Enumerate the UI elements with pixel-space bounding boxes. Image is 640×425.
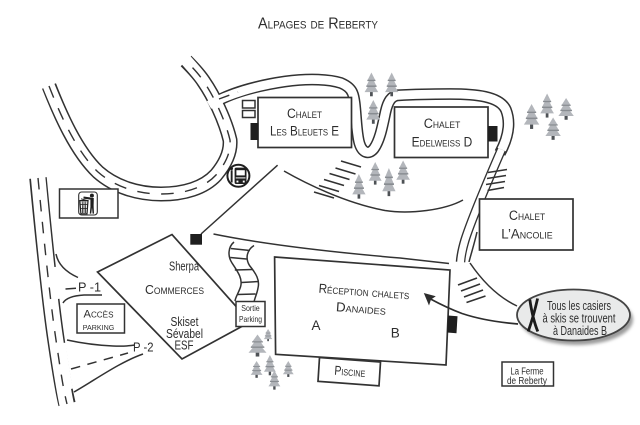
svg-text:de Reberty: de Reberty [507, 376, 547, 387]
svg-text:Chalet: Chalet [424, 116, 461, 131]
svg-text:Sortie: Sortie [241, 303, 260, 313]
svg-text:B: B [391, 326, 400, 341]
svg-text:parking: parking [83, 322, 115, 333]
svg-text:L’Ancolie: L’Ancolie [501, 227, 552, 242]
svg-text:Edelweiss D: Edelweiss D [412, 135, 473, 150]
svg-text:Accès: Accès [84, 309, 114, 321]
svg-text:Chalet: Chalet [287, 106, 322, 121]
svg-text:P -2: P -2 [133, 341, 154, 355]
svg-text:Sherpa: Sherpa [169, 260, 199, 274]
svg-text:Alpages de Reberty: Alpages de Reberty [258, 16, 379, 33]
svg-text:Parking: Parking [239, 314, 262, 324]
svg-text:Piscine: Piscine [334, 363, 366, 380]
svg-text:ESF: ESF [175, 339, 194, 353]
svg-text:A: A [312, 318, 321, 333]
svg-text:à Danaides B: à Danaides B [553, 323, 607, 338]
svg-text:Commerces: Commerces [145, 282, 204, 297]
svg-text:Chalet: Chalet [509, 208, 546, 223]
svg-text:Les Bleuets E: Les Bleuets E [270, 124, 339, 139]
svg-text:P -1: P -1 [78, 281, 101, 295]
